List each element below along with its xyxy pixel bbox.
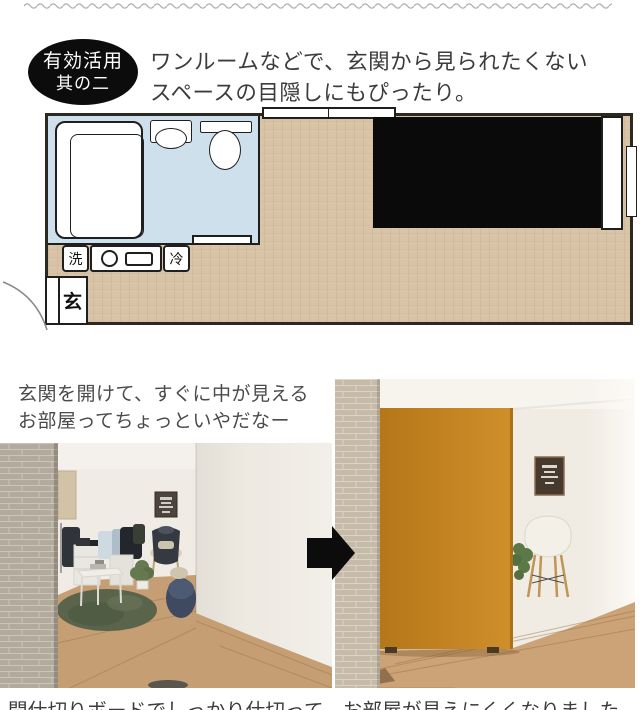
toilet-bowl xyxy=(209,130,241,170)
bathtub-inner xyxy=(70,134,144,238)
wall-poster xyxy=(155,492,177,517)
caption-before-line2: お部屋ってちょっといやだなー xyxy=(18,408,309,435)
caption-before-line1: 玄関を開けて、すぐに中が見える xyxy=(18,381,309,408)
headline-line2: スペースの目隠しにもぴったり。 xyxy=(150,78,588,109)
washer-label: 洗 xyxy=(69,249,83,269)
headline-line1: ワンルームなどで、玄関から見られたくない xyxy=(150,47,588,78)
ceiling xyxy=(58,443,197,469)
fridge-symbol: 冷 xyxy=(163,245,190,272)
washbasin xyxy=(155,128,187,149)
brick-wall xyxy=(0,443,58,688)
fridge-label: 冷 xyxy=(170,249,184,269)
right-window-outer xyxy=(626,146,637,217)
right-window xyxy=(601,116,623,230)
top-window-divider xyxy=(328,107,329,119)
partition-board xyxy=(378,408,513,649)
caption-before: 玄関を開けて、すぐに中が見える お部屋ってちょっといやだなー xyxy=(18,381,309,435)
board-foot-right xyxy=(487,647,499,653)
near-wall-highlight xyxy=(587,379,635,619)
door-swing-arc xyxy=(0,270,52,334)
photo-before xyxy=(0,443,332,688)
headline: ワンルームなどで、玄関から見られたくない スペースの目隠しにもぴったり。 xyxy=(150,47,588,109)
caption-after: 間仕切りボードでしっかり仕切って、お部屋が見えにくくなりました xyxy=(8,694,619,710)
kitchen-sink xyxy=(125,252,153,266)
board-foot-left xyxy=(385,647,397,653)
arrow-right-icon xyxy=(307,526,355,580)
brick-edge-shadow xyxy=(54,443,58,688)
bathroom-door-gap xyxy=(192,235,252,245)
washer-symbol: 洗 xyxy=(62,245,89,272)
partition-bed-area xyxy=(373,117,603,228)
brick-edge-shadow xyxy=(377,379,380,688)
badge-line2: 其の二 xyxy=(56,73,110,94)
kitchen-burner xyxy=(101,250,118,267)
feature-badge: 有効活用 其の二 xyxy=(28,39,138,105)
kitchen-counter xyxy=(90,245,162,272)
badge-line1: 有効活用 xyxy=(43,50,123,74)
photo-after xyxy=(335,379,635,688)
wavy-divider xyxy=(24,1,612,11)
bathtub xyxy=(55,121,143,239)
board-edge xyxy=(510,408,513,649)
product-page: 有効活用 其の二 ワンルームなどで、玄関から見られたくない スペースの目隠しにも… xyxy=(0,0,640,710)
window-blind xyxy=(58,471,76,519)
floorplan: 洗 冷 玄 xyxy=(45,113,633,325)
entrance-label: 玄 xyxy=(59,278,86,323)
